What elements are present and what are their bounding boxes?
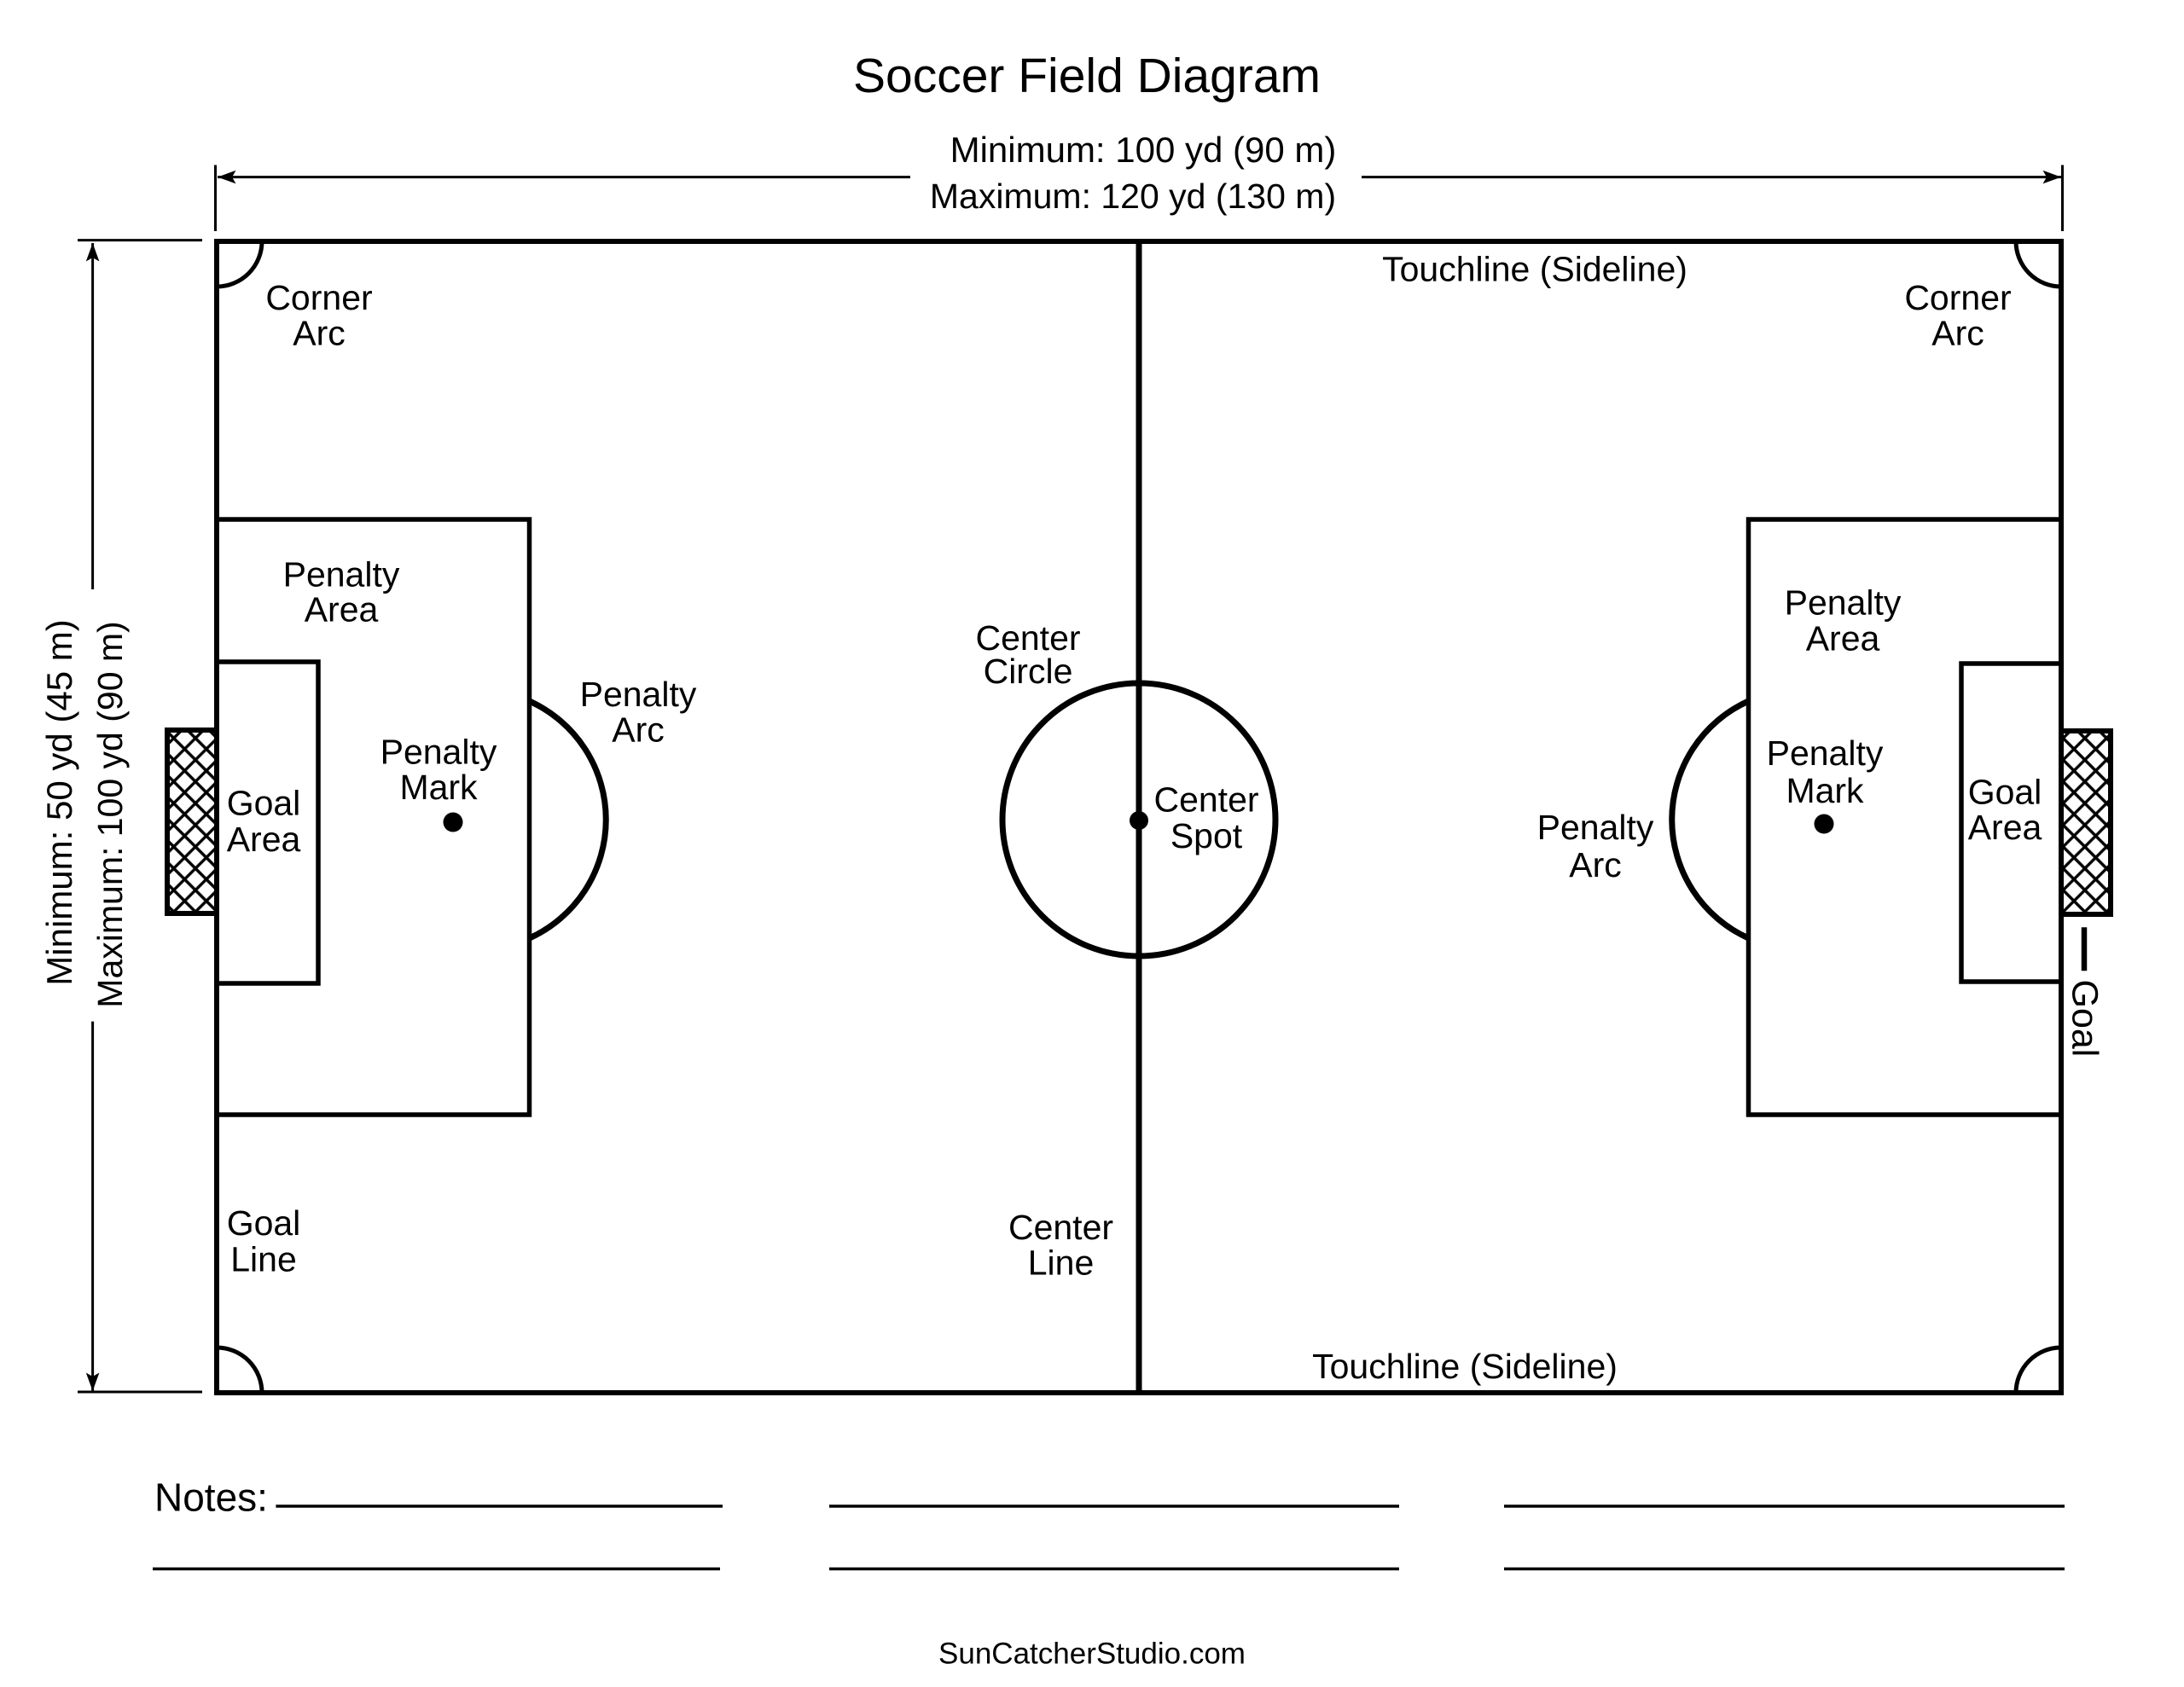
svg-text:Minimum: 100 yd (90 m): Minimum: 100 yd (90 m) <box>950 130 1337 170</box>
svg-text:GoalArea: GoalArea <box>227 783 301 859</box>
svg-text:Maximum: 100 yd (90 m): Maximum: 100 yd (90 m) <box>90 621 130 1007</box>
svg-text:Goal: Goal <box>2065 980 2106 1058</box>
svg-text:Minimum: 50 yd (45 m): Minimum: 50 yd (45 m) <box>39 619 79 985</box>
svg-text:GoalArea: GoalArea <box>1968 772 2042 847</box>
svg-text:Touchline (Sideline): Touchline (Sideline) <box>1382 250 1687 289</box>
svg-text:Soccer Field Diagram: Soccer Field Diagram <box>853 49 1321 103</box>
svg-text:SunCatcherStudio.com: SunCatcherStudio.com <box>938 1638 1246 1671</box>
svg-text:Notes:: Notes: <box>154 1475 268 1520</box>
svg-text:Maximum: 120 yd (130 m): Maximum: 120 yd (130 m) <box>930 177 1336 216</box>
svg-text:Touchline (Sideline): Touchline (Sideline) <box>1312 1347 1618 1386</box>
svg-text:GoalLine: GoalLine <box>227 1203 301 1278</box>
svg-text:CenterCircle: CenterCircle <box>975 618 1080 691</box>
